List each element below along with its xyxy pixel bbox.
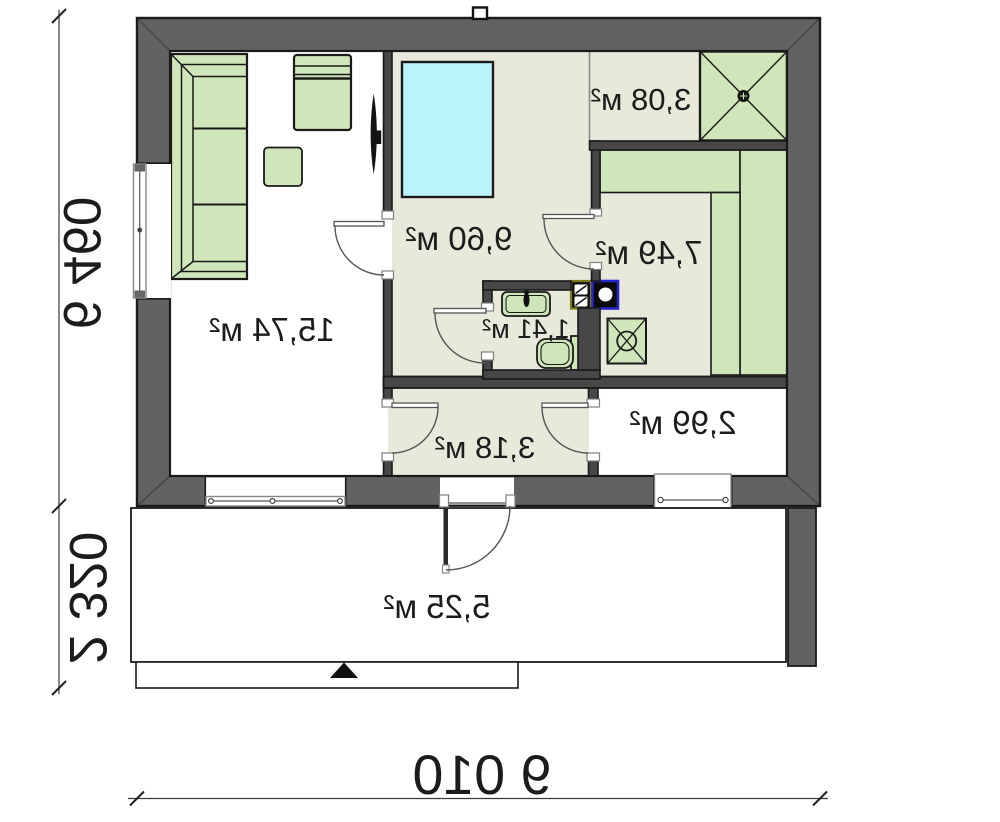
svg-text:2,99 м²: 2,99 м² (629, 404, 736, 441)
svg-text:3,08 м²: 3,08 м² (591, 82, 692, 117)
svg-text:7,49 м²: 7,49 м² (595, 234, 702, 271)
svg-text:15,74 м²: 15,74 м² (209, 311, 334, 348)
svg-text:9,60 м²: 9,60 м² (405, 220, 512, 257)
svg-text:9 010: 9 010 (413, 744, 552, 806)
svg-text:1,41 м²: 1,41 м² (482, 314, 570, 344)
svg-text:3,18 м²: 3,18 м² (435, 430, 536, 465)
svg-text:6 460: 6 460 (52, 197, 111, 330)
svg-text:5,25 м²: 5,25 м² (383, 588, 490, 625)
svg-text:2 320: 2 320 (58, 532, 117, 665)
